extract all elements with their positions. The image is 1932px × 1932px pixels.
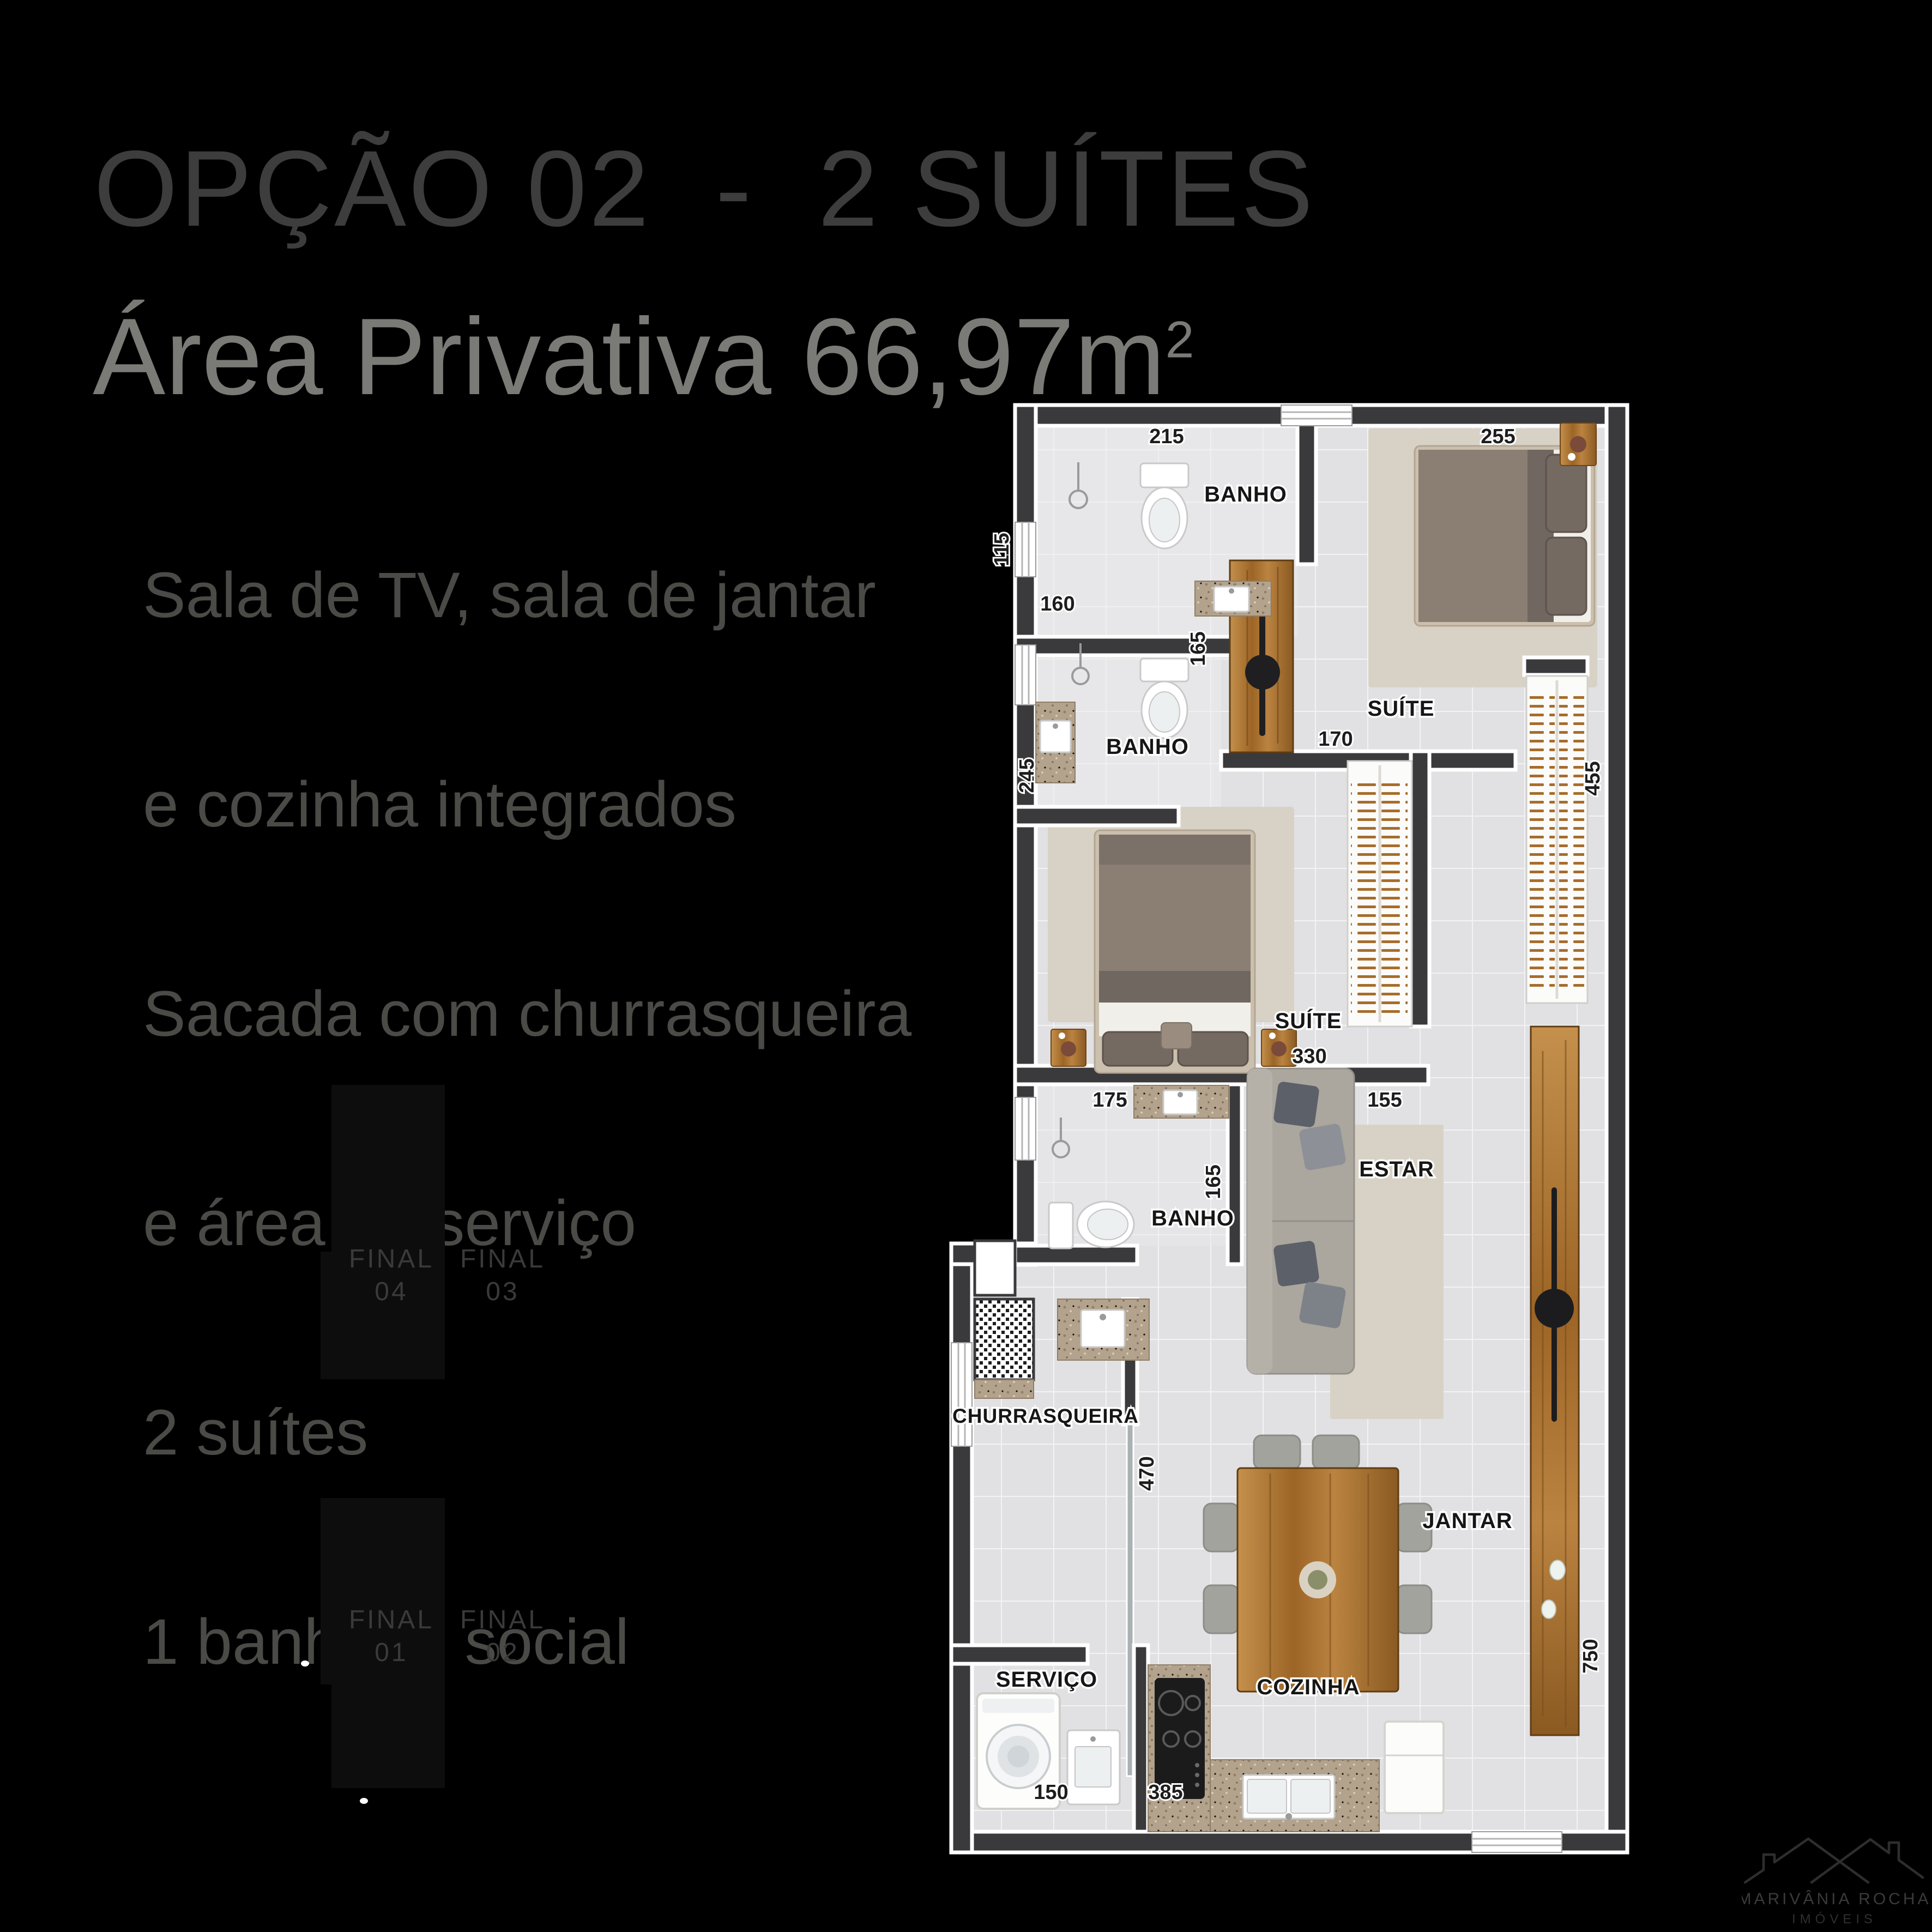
suite1-nightstand [1560,423,1596,466]
banho2-sink [1036,702,1075,783]
room-label-banho-suite2: BANHO [1106,735,1189,759]
room-label-servico: SERVIÇO [996,1668,1097,1692]
wall-banho1-suite1 [1297,405,1316,564]
room-label-estar: ESTAR [1359,1157,1434,1181]
window-left-160 [1015,645,1036,705]
room-label-cozinha: COZINHA [1257,1675,1360,1699]
banho3-sink [1134,1085,1229,1118]
feature-item: 2 suítes [143,1398,911,1468]
logo-roofline-icon [1745,1839,1923,1882]
banho1-sink [1195,581,1271,616]
dim-155: 155 [1367,1089,1402,1112]
keyplan-dot [301,1661,309,1667]
dim-330: 330 [1292,1045,1326,1068]
keyplan-dot [360,1798,368,1804]
sliding-door-bottom [1472,1832,1562,1852]
window-churrasqueira [951,1343,972,1446]
dim-170: 170 [1318,728,1353,751]
dim-150: 150 [1034,1781,1068,1804]
window-left-banho3 [1015,1097,1036,1160]
churrasqueira-grill [975,1299,1034,1398]
cozinha-sink [1243,1775,1335,1820]
wall-banho3-right [1228,1084,1242,1264]
wall-servico-top [951,1645,1088,1664]
suite2-closet [1348,761,1412,1027]
wall-left-extension [951,1243,972,1852]
floor-plan: BANHO SUÍTE BANHO SUÍTE ESTAR BANHO CHUR… [949,397,1630,1875]
logo-subtitle: IMÓVEIS [1792,1912,1877,1927]
estar-sofa [1247,1068,1354,1374]
feature-item: e cozinha integrados [143,770,911,840]
suite2-nightstand-right [1261,1029,1296,1066]
dim-750: 750 [1579,1639,1602,1673]
page: OPÇÃO 02 - 2 SUÍTES Área Privativa 66,97… [0,0,1932,1932]
dim-215: 215 [1149,425,1184,448]
churrasqueira-shaft [975,1241,1015,1295]
keyplan-unit-outline-top [331,1085,445,1379]
dim-165b: 165 [1202,1164,1225,1199]
servico-tank [1067,1730,1120,1804]
dim-455: 455 [1581,761,1604,795]
agency-logo: MARIVÂNIA ROCHA IMÓVEIS [1742,1831,1930,1931]
wall-banho3-bottom [1015,1246,1137,1264]
feature-item: Sala de TV, sala de jantar [143,560,911,630]
window-left-115 [1015,522,1036,577]
dim-175: 175 [1092,1089,1127,1112]
churrasqueira-counter-sink [1058,1299,1149,1360]
dim-255: 255 [1481,425,1515,448]
dim-385: 385 [1148,1781,1182,1804]
wall-banho2-bottom [1015,807,1179,825]
dim-470: 470 [1136,1456,1158,1490]
banho2-toilet [1140,659,1188,738]
private-area-sup: 2 [1166,311,1194,369]
room-label-suite1: SUÍTE [1368,696,1435,721]
wall-closet2-right [1411,751,1429,1027]
suite1-closet [1526,676,1587,1003]
keyplan-final-02: FINAL 02 [437,1604,568,1669]
jantar-table [1237,1468,1398,1692]
room-label-banho-suite1: BANHO [1204,482,1287,506]
wall-closet1-top [1524,657,1587,675]
banho3-toilet [1049,1202,1134,1248]
room-label-banho-social: BANHO [1151,1206,1234,1230]
suite2-bed [1095,830,1255,1073]
wall-servico-right [1134,1645,1148,1832]
logo-name: MARIVÂNIA ROCHA [1742,1890,1930,1908]
keyplan-final-03: FINAL 03 [437,1243,568,1308]
page-title: OPÇÃO 02 - 2 SUÍTES [94,126,1315,250]
dim-245: 245 [1016,758,1039,793]
dim-165a: 165 [1187,631,1210,666]
sacada-wood-panel [1531,1027,1579,1735]
cozinha-fridge [1385,1722,1444,1813]
dim-160: 160 [1040,593,1074,615]
suite1-bed [1415,446,1595,626]
window-top-suite1 [1281,405,1352,426]
feature-item: Sacada com churrasqueira [143,979,911,1049]
dim-115: 115 [991,533,1013,566]
banho1-toilet [1140,463,1188,548]
wall-right [1607,405,1627,1852]
room-label-suite2: SUÍTE [1275,1009,1342,1033]
room-label-jantar: JANTAR [1422,1509,1512,1533]
suite2-nightstand-left [1051,1029,1086,1066]
room-label-churrasqueira: CHURRASQUEIRA [952,1405,1139,1427]
